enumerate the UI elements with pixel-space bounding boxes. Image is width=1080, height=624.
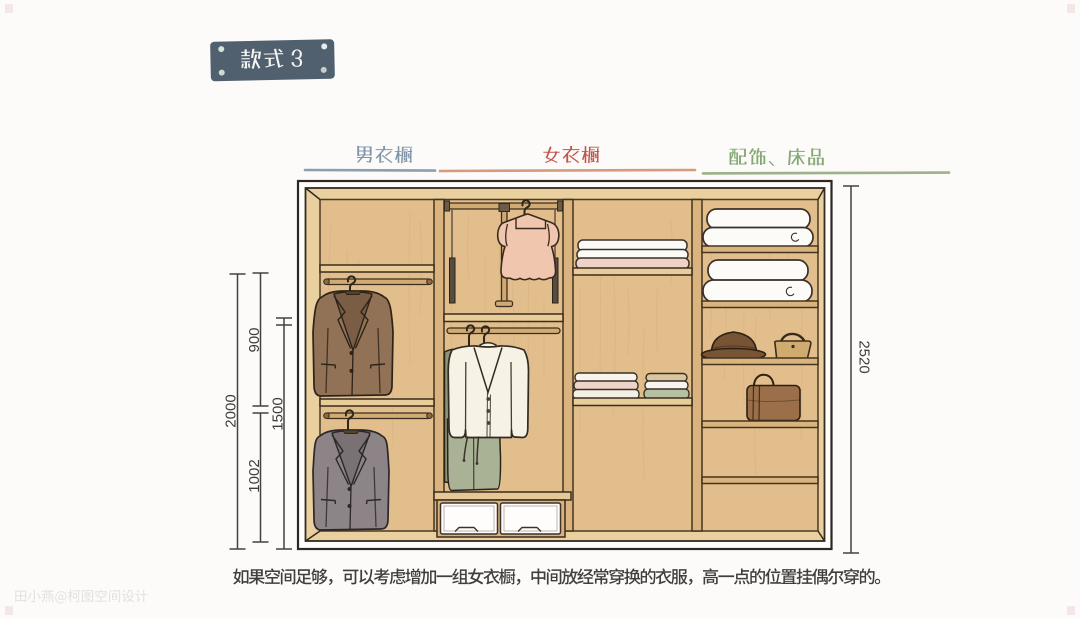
svg-text:2520: 2520 xyxy=(855,340,872,373)
svg-text:1500: 1500 xyxy=(269,397,286,430)
svg-text:2000: 2000 xyxy=(222,394,239,427)
svg-text:1002: 1002 xyxy=(246,459,263,492)
svg-text:900: 900 xyxy=(246,327,263,352)
